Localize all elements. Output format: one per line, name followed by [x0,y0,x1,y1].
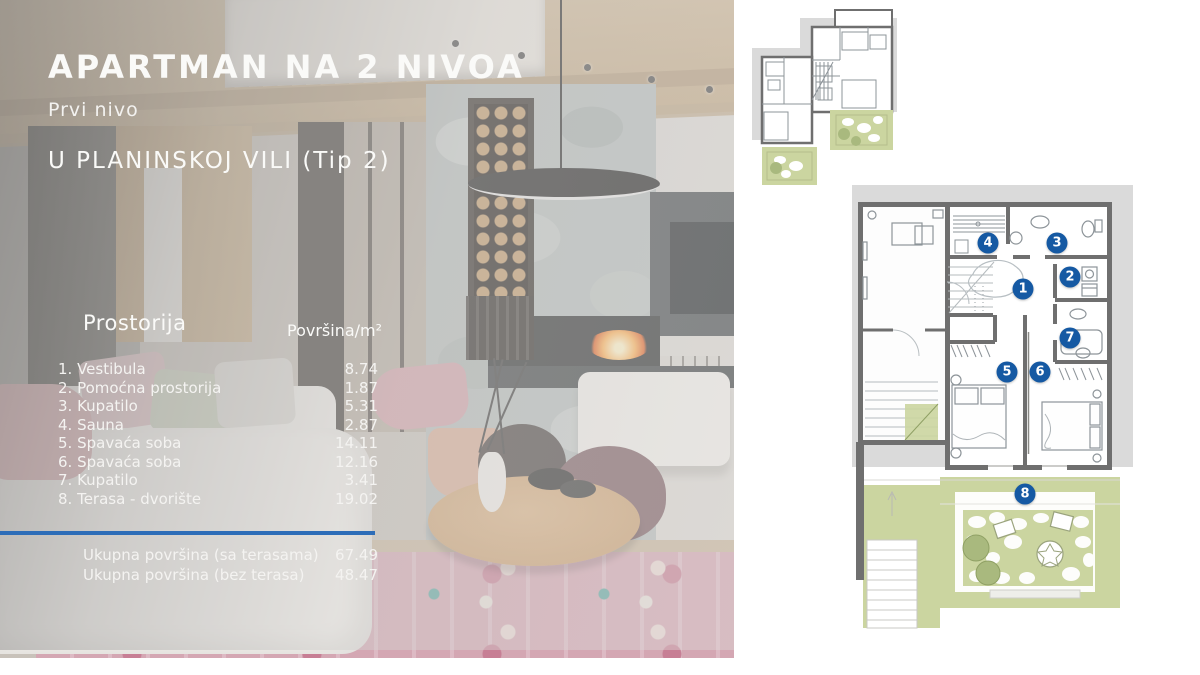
table-row: 6. Spavaća soba 12.16 [58,453,378,472]
room-marker-4: 4 [978,233,999,254]
table-row: 8. Terasa - dvorište 19.02 [58,490,378,509]
room-area: 19.02 [335,490,378,509]
room-name: 2. Pomoćna prostorija [58,379,221,398]
room-area: 1.87 [345,379,378,398]
page-subtitle-level: Prvi nivo [48,99,139,121]
room-marker-2: 2 [1060,267,1081,288]
table-row: 3. Kupatilo 5.31 [58,397,378,416]
room-name: 4. Sauna [58,416,124,435]
room-marker-7: 7 [1060,328,1081,349]
floor-plan-large [845,182,1145,660]
room-name: 6. Spavaća soba [58,453,181,472]
slide: APARTMAN NA 2 NIVOA Prvi nivo U PLANINSK… [0,0,1200,675]
total-label: Ukupna površina (sa terasama) [83,546,319,566]
table-row: 4. Sauna 2.87 [58,416,378,435]
table-row: 1. Vestibula 8.74 [58,360,378,379]
total-value: 48.47 [335,566,378,586]
room-table: 1. Vestibula 8.74 2. Pomoćna prostorija … [58,360,378,508]
floor-plan-small [748,8,948,198]
total-value: 67.49 [335,546,378,566]
room-name: 5. Spavaća soba [58,434,181,453]
room-name: 7. Kupatilo [58,471,138,490]
room-marker-3: 3 [1047,233,1068,254]
room-area: 14.11 [335,434,378,453]
room-marker-8: 8 [1015,484,1036,505]
room-marker-5: 5 [997,362,1018,383]
total-row: Ukupna površina (bez terasa) 48.47 [83,566,378,586]
room-area: 3.41 [345,471,378,490]
room-marker-1: 1 [1013,279,1034,300]
room-name: 1. Vestibula [58,360,146,379]
room-area: 2.87 [345,416,378,435]
total-row: Ukupna površina (sa terasama) 67.49 [83,546,378,566]
room-marker-6: 6 [1030,362,1051,383]
room-area: 12.16 [335,453,378,472]
table-row: 2. Pomoćna prostorija 1.87 [58,379,378,398]
room-area: 5.31 [345,397,378,416]
table-row: 5. Spavaća soba 14.11 [58,434,378,453]
page-title: APARTMAN NA 2 NIVOA [48,48,525,86]
page-subtitle-villa: U PLANINSKOJ VILI (Tip 2) [48,148,391,174]
table-header-room: Prostorija [83,311,187,335]
total-label: Ukupna površina (bez terasa) [83,566,304,586]
room-area: 8.74 [345,360,378,379]
table-header-area: Površina/m² [287,321,382,340]
accent-divider-line [0,531,375,535]
room-name: 3. Kupatilo [58,397,138,416]
table-row: 7. Kupatilo 3.41 [58,471,378,490]
room-name: 8. Terasa - dvorište [58,490,201,509]
totals-table: Ukupna površina (sa terasama) 67.49 Ukup… [83,546,378,585]
